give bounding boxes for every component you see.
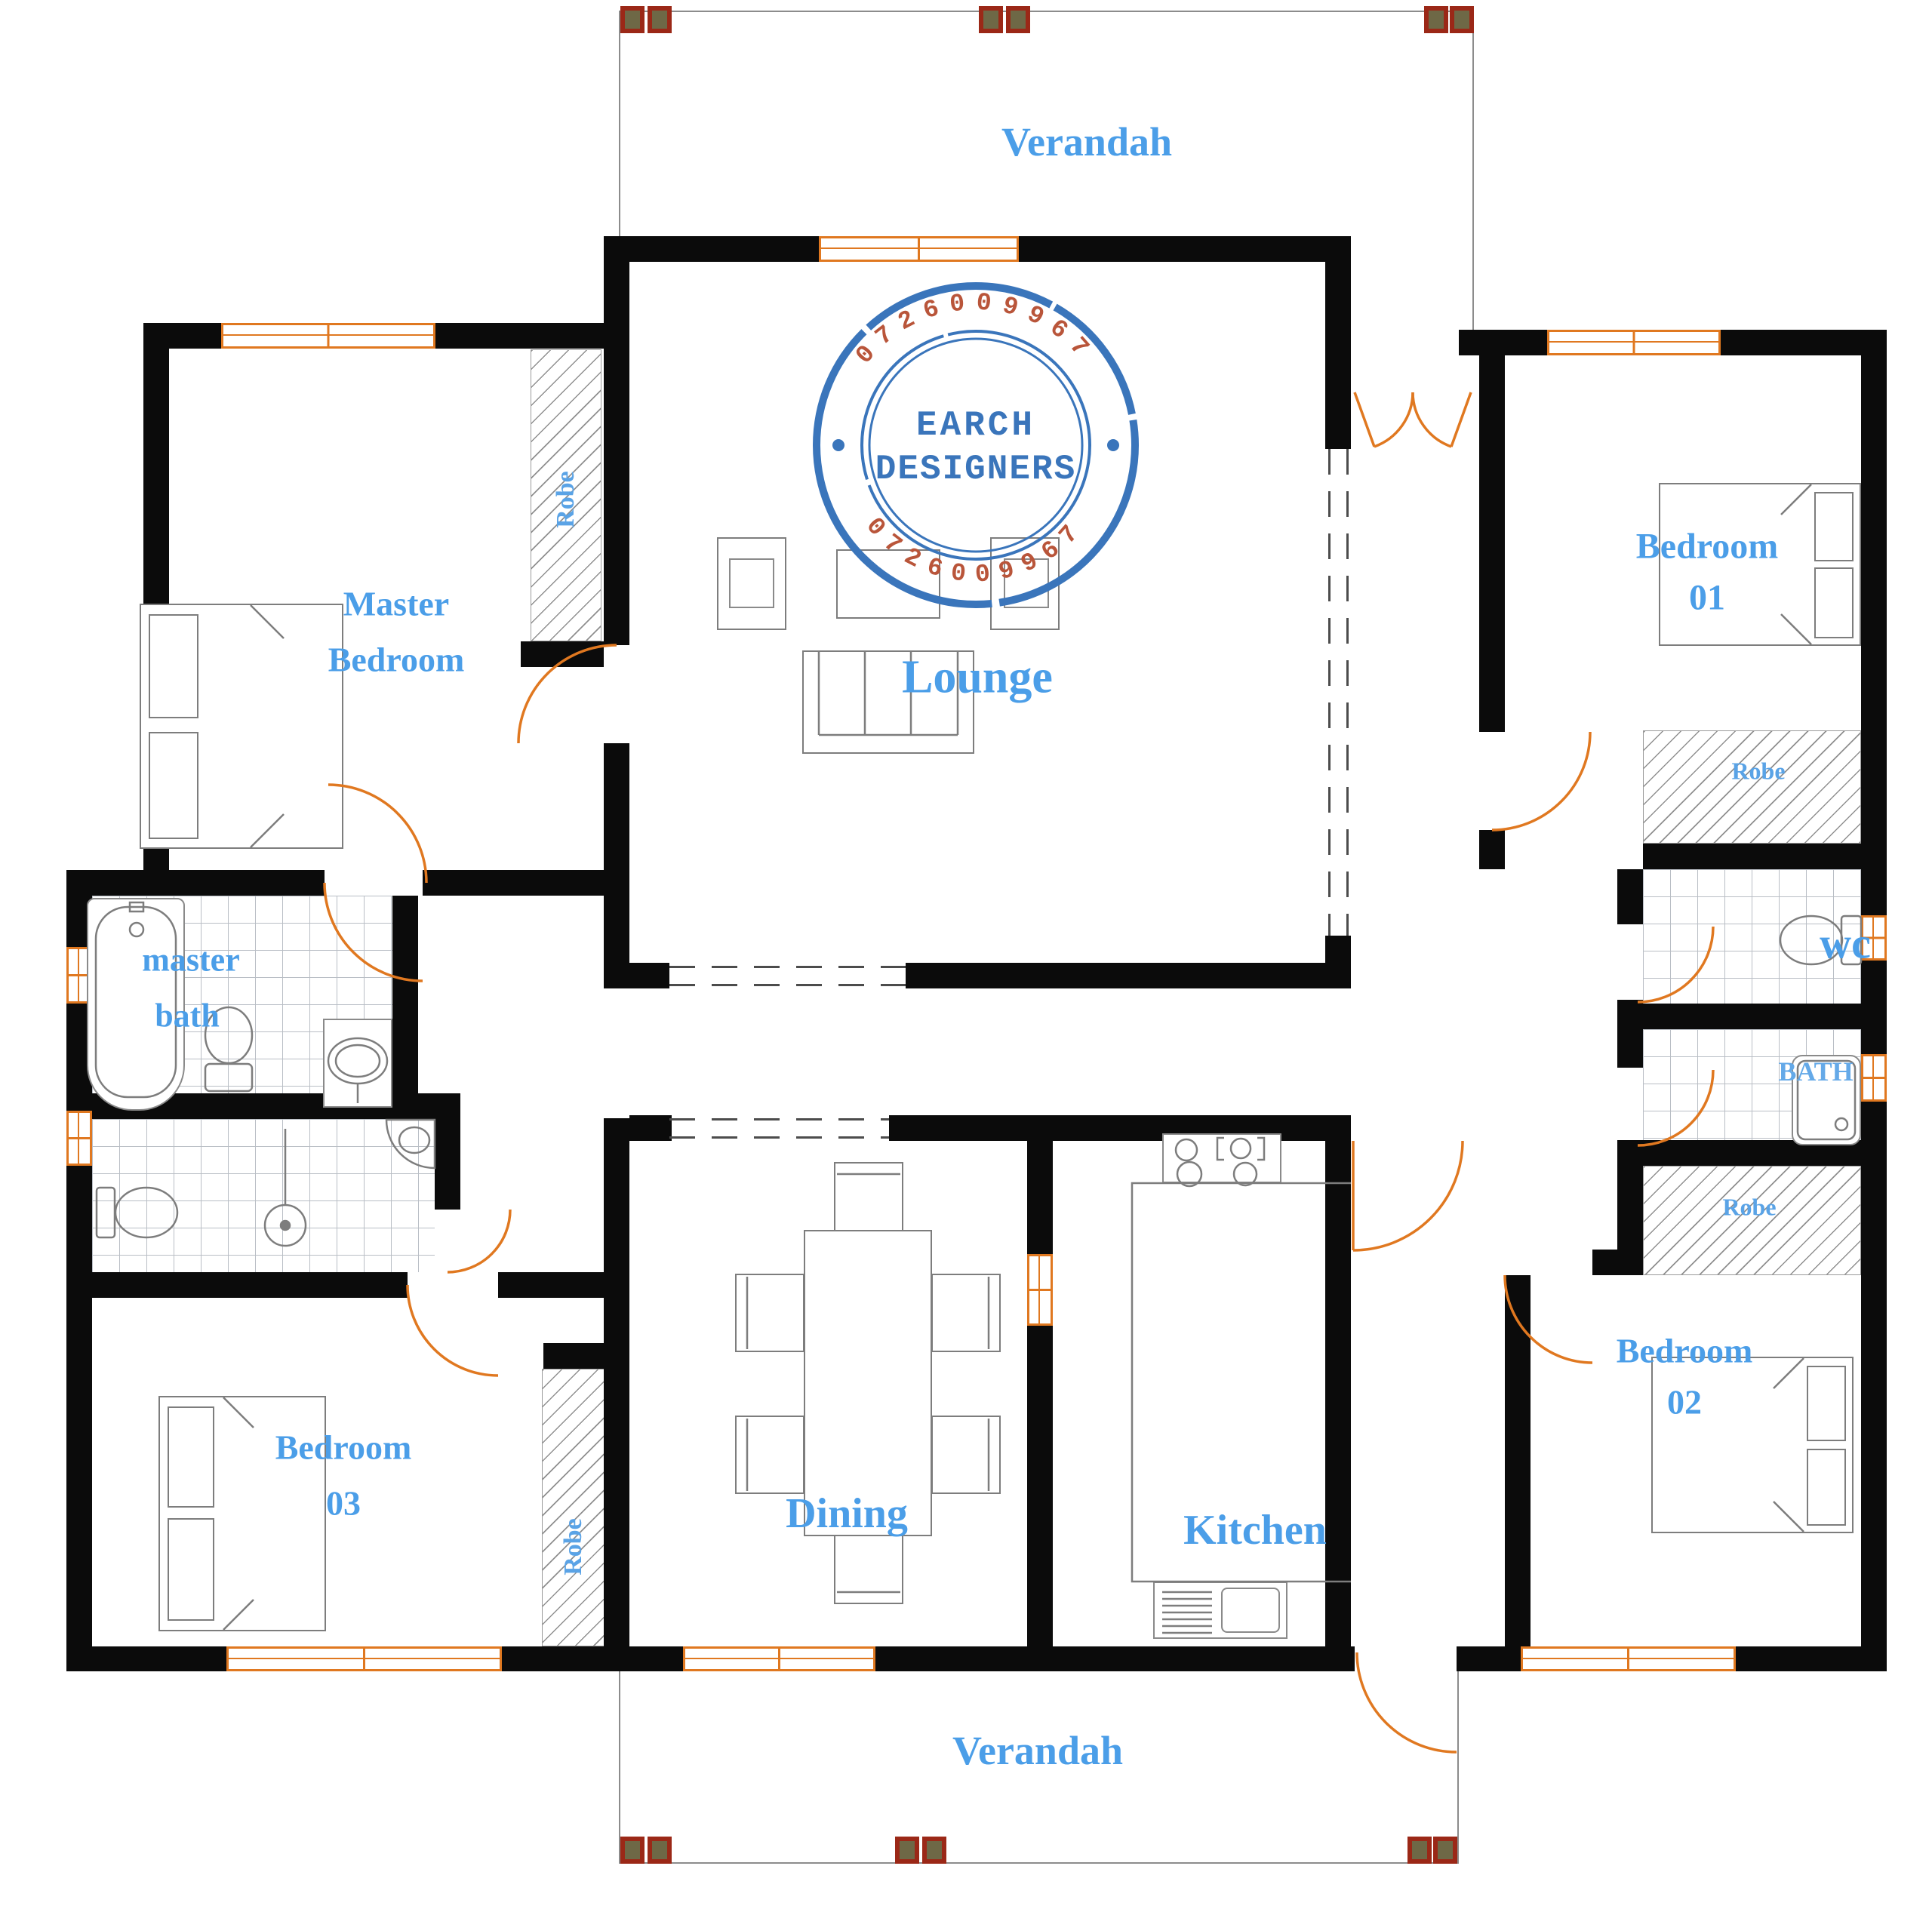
label-bedroom01-1: Bedroom [1636, 526, 1778, 567]
label-master-bedroom-2: Bedroom [328, 640, 465, 680]
stamp-name-line2: DESIGNERS [875, 450, 1076, 489]
opening-dashed [1328, 449, 1331, 936]
chair [735, 1416, 804, 1494]
pillow [168, 1406, 214, 1508]
label-bedroom03-2: 03 [326, 1483, 361, 1523]
wall-segment [1325, 236, 1351, 449]
stamp-inner-ring [862, 331, 1090, 559]
pillow [1807, 1449, 1846, 1526]
floor-plan: 0726009967 0726009967 EARCH DESIGNERS Ve… [0, 0, 1932, 1909]
label-dining: Dining [786, 1489, 908, 1538]
verandah-right-edge [1472, 11, 1474, 330]
wall-segment [1457, 1646, 1521, 1671]
label-bedroom02-2: 02 [1667, 1382, 1702, 1422]
stamp-dot [832, 439, 844, 451]
wall-segment [66, 1646, 226, 1671]
label-master-bedroom-1: Master [343, 584, 449, 624]
label-verandah-top: Verandah [1001, 118, 1172, 165]
window [226, 1646, 502, 1671]
wall-segment [1861, 330, 1887, 915]
door-arc [1413, 392, 1451, 447]
robe-bedroom01 [1643, 730, 1861, 844]
column [979, 6, 1003, 33]
opening-dashed [669, 984, 906, 986]
wall-segment [1617, 869, 1643, 924]
earch-designers-stamp: 0726009967 0726009967 EARCH DESIGNERS [811, 281, 1141, 610]
column [922, 1837, 946, 1864]
door-leaf [1451, 392, 1471, 447]
column [620, 6, 645, 33]
wall-segment [604, 236, 819, 262]
second-bath-floor [92, 1119, 435, 1272]
window [1547, 330, 1721, 355]
verandah-bottom-left-edge [619, 1671, 620, 1864]
window [66, 1111, 92, 1166]
wall-segment [66, 1272, 408, 1298]
wall-segment [604, 1118, 629, 1646]
window [1521, 1646, 1736, 1671]
window [819, 236, 1019, 262]
opening-dashed [669, 966, 906, 968]
label-bedroom02-1: Bedroom [1617, 1331, 1753, 1371]
window [683, 1646, 875, 1671]
verandah-bottom-edge [619, 1862, 1459, 1864]
column [648, 6, 672, 33]
stamp-dot [1107, 439, 1119, 451]
wall-segment [1027, 1126, 1053, 1254]
column [1433, 1837, 1457, 1864]
label-robe-bedroom03: Robe [559, 1518, 588, 1575]
pillow [149, 614, 198, 718]
wall-segment [435, 323, 629, 349]
chair [735, 1274, 804, 1352]
column [1424, 6, 1448, 33]
chair [931, 1416, 1001, 1494]
basin-counter [323, 1019, 392, 1108]
wall-segment [66, 870, 325, 896]
label-robe-bedroom01: Robe [1731, 758, 1785, 785]
wall-segment [423, 870, 629, 896]
wall-segment [1505, 1275, 1531, 1646]
label-bedroom03-1: Bedroom [275, 1428, 412, 1468]
pillow [1814, 492, 1854, 561]
verandah-left-edge [619, 11, 620, 237]
window [1027, 1254, 1053, 1326]
robe-bedroom03 [542, 1369, 605, 1646]
pillow [168, 1518, 214, 1621]
opening-dashed [1346, 449, 1349, 936]
wall-segment [1325, 1141, 1351, 1646]
stove [1162, 1133, 1281, 1183]
stamp-outer-ring [817, 286, 1135, 604]
column [1407, 1837, 1432, 1864]
wall-segment [1643, 844, 1861, 869]
wall-segment [604, 963, 669, 988]
label-master-bath-2: bath [155, 997, 220, 1035]
door-arc [1357, 1652, 1457, 1752]
column [1450, 6, 1474, 33]
door-leaf [1355, 392, 1374, 447]
wall-segment [66, 1298, 92, 1671]
pillow [149, 732, 198, 839]
wall-segment [629, 1115, 672, 1141]
opening-dashed [669, 1118, 889, 1120]
column [620, 1837, 645, 1864]
label-wc: wc [1820, 918, 1871, 969]
chair [834, 1162, 903, 1231]
wall-segment [604, 743, 629, 988]
stamp-inner-ring2 [869, 339, 1082, 552]
door-arc [1492, 732, 1590, 830]
label-robe-master: Robe [552, 471, 580, 528]
label-master-bath-1: master [142, 941, 240, 979]
wall-segment [392, 896, 418, 1119]
label-verandah-bottom: Verandah [952, 1727, 1123, 1774]
label-robe-bedroom02: Robe [1722, 1194, 1776, 1222]
wall-segment [889, 1115, 1351, 1141]
door-arc [1353, 1141, 1463, 1250]
wall-segment [1479, 830, 1505, 869]
label-bedroom01-2: 01 [1689, 577, 1725, 619]
wall-segment [1592, 1250, 1643, 1275]
wall-segment [1027, 1326, 1053, 1646]
door-arc [448, 1210, 510, 1272]
wall-segment [543, 1343, 604, 1369]
pillow [1814, 567, 1854, 638]
wall-segment [1861, 961, 1887, 1054]
label-lounge: Lounge [902, 651, 1053, 705]
verandah-top-edge [619, 11, 1474, 12]
wall-segment [502, 1646, 683, 1671]
label-bath: BATH [1778, 1056, 1853, 1087]
label-kitchen: Kitchen [1183, 1506, 1327, 1554]
wall-segment [906, 963, 1325, 988]
stamp-name-line1: EARCH [916, 406, 1035, 445]
wall-segment [1019, 236, 1351, 262]
armchair-seat [729, 558, 774, 608]
chair [931, 1274, 1001, 1352]
wall-segment [1861, 1102, 1887, 1671]
pillow [1807, 1366, 1846, 1441]
window [221, 323, 435, 349]
opening-dashed [669, 1136, 889, 1139]
wall-segment [604, 236, 629, 645]
stamp-phone-top: 0726009967 [851, 288, 1101, 370]
verandah-bottom-right-edge [1457, 1671, 1459, 1864]
wall-segment [1617, 1004, 1861, 1029]
sink-bowl [1221, 1588, 1280, 1633]
chair [834, 1535, 903, 1604]
wall-segment [521, 641, 604, 667]
wall-segment [1325, 936, 1351, 988]
door-arc [408, 1285, 498, 1376]
column [1006, 6, 1030, 33]
column [648, 1837, 672, 1864]
wall-segment [1459, 330, 1547, 355]
wall-segment [875, 1646, 1355, 1671]
column [895, 1837, 919, 1864]
door-arc [1374, 392, 1413, 447]
wall-segment [435, 1119, 460, 1210]
window [1861, 1054, 1887, 1102]
wall-segment [1479, 355, 1505, 732]
